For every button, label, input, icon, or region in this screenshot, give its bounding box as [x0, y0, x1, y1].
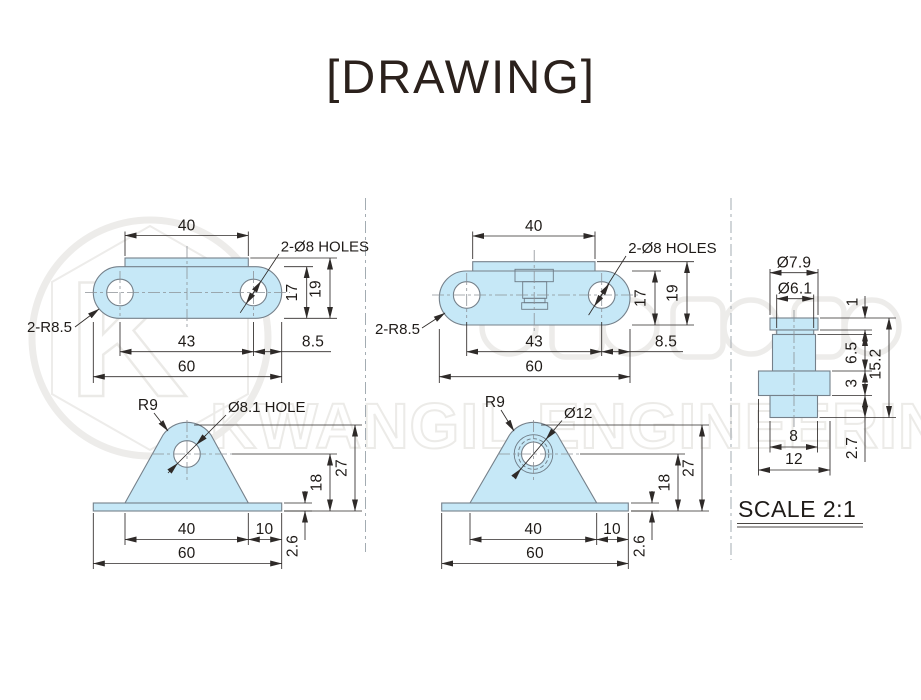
dim-pin-width: 8 — [789, 428, 798, 445]
dim-hole-note: Ø8.1 HOLE — [228, 399, 306, 416]
dim-8-5: 8.5 — [302, 334, 324, 351]
dim-10: 10 — [256, 521, 274, 538]
dim-60: 60 — [525, 359, 543, 376]
dim-40: 40 — [178, 521, 196, 538]
dim-8-5: 8.5 — [655, 334, 677, 351]
stud-groove — [777, 330, 814, 335]
dim-hole-note: Ø12 — [564, 405, 592, 422]
dim-17: 17 — [633, 289, 650, 307]
dim-2-6: 2.6 — [285, 535, 302, 557]
scale-label: SCALE 2:1 — [738, 496, 856, 522]
dim-60: 60 — [526, 545, 544, 562]
dim-60: 60 — [178, 359, 196, 376]
dim-corner-radius: 2-R8.5 — [27, 319, 72, 336]
dim-18: 18 — [657, 474, 674, 492]
drawing-sheet: K KWANGIL ENGINEERING [DRAWING] — [0, 0, 921, 700]
dim-60: 60 — [178, 545, 196, 562]
dim-dia-outer: Ø7.9 — [777, 255, 811, 272]
dim-10: 10 — [603, 521, 621, 538]
dim-holes-note: 2-Ø8 HOLES — [281, 239, 369, 256]
dim-43: 43 — [525, 334, 543, 351]
bracket-base-plate — [442, 503, 629, 511]
dim-43: 43 — [178, 334, 196, 351]
bracket-base-plate — [93, 503, 281, 511]
dim-pin-height: 2.7 — [844, 437, 861, 459]
dim-40: 40 — [178, 218, 196, 235]
dim-flange-height: 3 — [844, 379, 861, 388]
dim-19: 19 — [308, 280, 325, 298]
dim-27: 27 — [681, 459, 698, 477]
dim-apex-radius: R9 — [138, 397, 158, 414]
dim-body-height: 6.5 — [844, 342, 861, 364]
dim-2-6: 2.6 — [632, 535, 649, 557]
dim-19: 19 — [665, 284, 682, 302]
view-top-mid-plate: 40 2-Ø8 HOLES 17 19 2-R8.5 43 — [375, 218, 717, 383]
dim-40: 40 — [524, 521, 542, 538]
dim-corner-radius: 2-R8.5 — [375, 321, 420, 338]
dim-apex-radius: R9 — [485, 394, 505, 411]
dim-total-height: 15.2 — [868, 349, 885, 380]
dim-40: 40 — [525, 218, 543, 235]
dim-dia-groove: Ø6.1 — [778, 281, 812, 298]
page-title: [DRAWING] — [326, 50, 596, 103]
scale-note: SCALE 2:1 — [737, 496, 863, 527]
dim-17: 17 — [284, 284, 301, 302]
dim-flange-width: 12 — [785, 451, 803, 468]
dim-holes-note: 2-Ø8 HOLES — [628, 240, 716, 257]
dim-18: 18 — [309, 474, 326, 492]
dim-27: 27 — [334, 459, 351, 477]
dim-cap-height: 1 — [845, 298, 862, 307]
